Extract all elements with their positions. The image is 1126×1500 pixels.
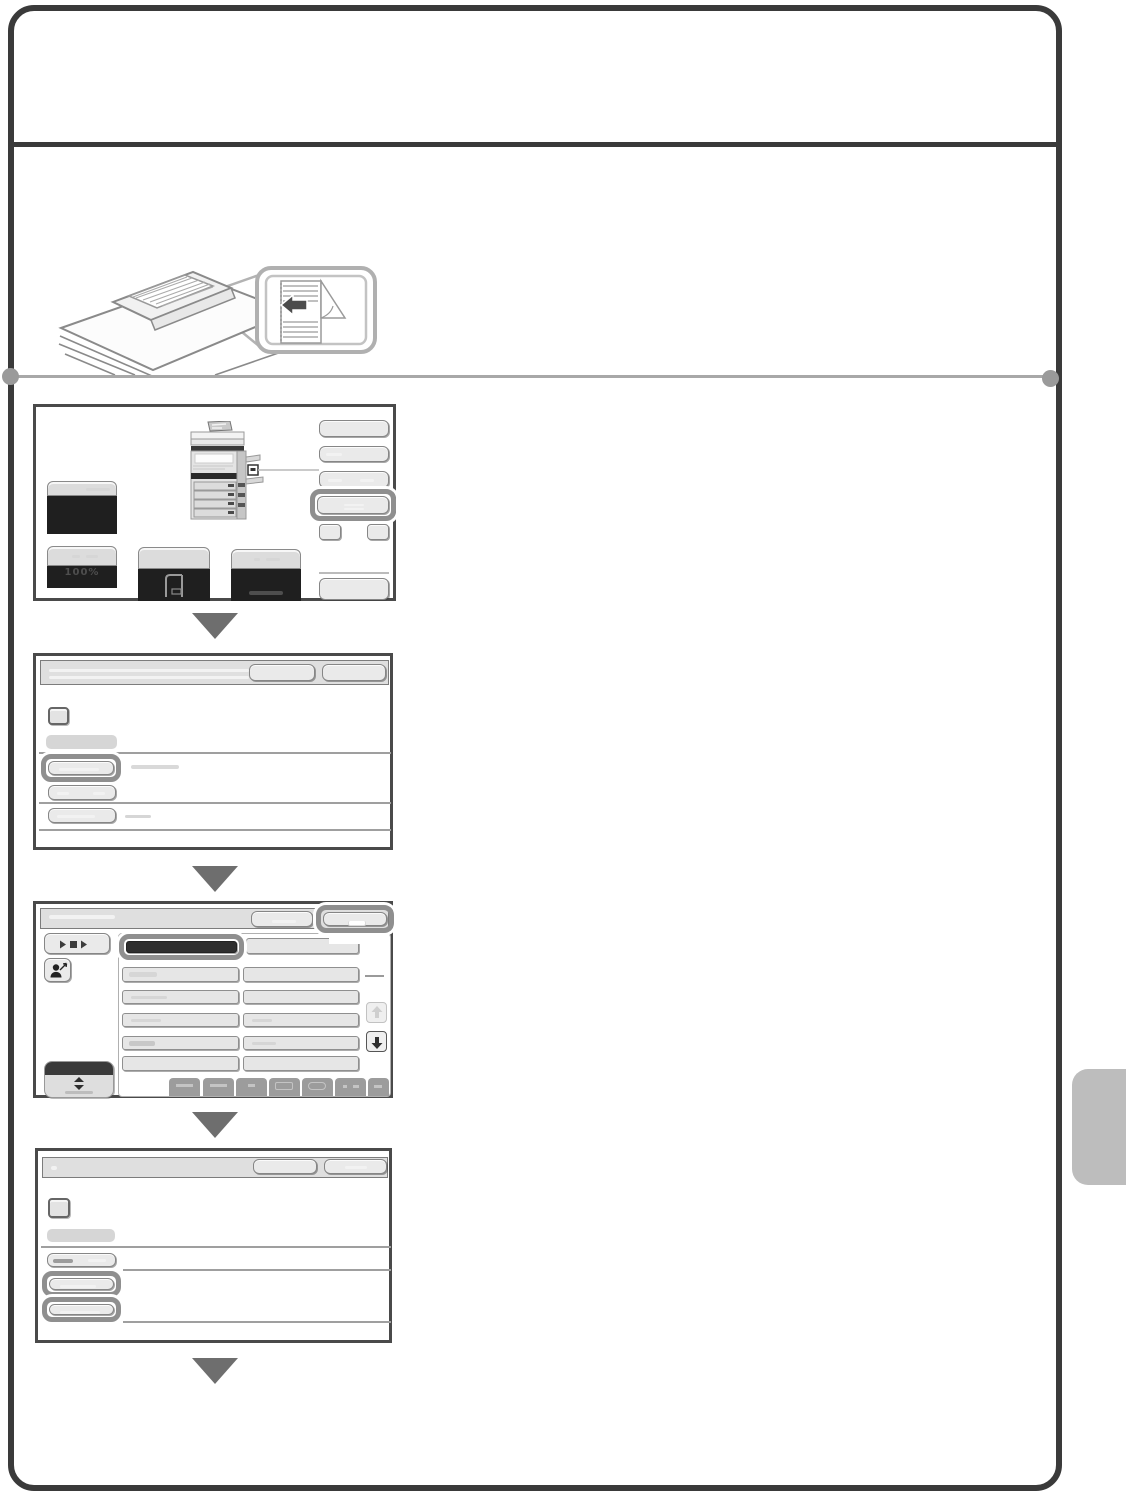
row-divider [123,1269,391,1271]
scroll-up-button[interactable] [366,1002,387,1023]
highlight-ring-one-touch-key [119,934,244,960]
index-tab[interactable] [203,1078,234,1096]
step-arrow-icon [192,613,238,639]
copy-paper-panel [138,569,210,601]
down-arrow-icon [371,1036,383,1049]
one-touch-key[interactable] [122,1036,239,1050]
index-tab[interactable] [368,1078,389,1096]
rule-left-dot [2,368,19,385]
highlight-ring-menu-button [42,1271,121,1297]
step-arrow-icon [192,866,238,892]
person-icon [49,962,68,980]
titlebar-button-right[interactable] [322,664,386,681]
menu-button-highlighted-1[interactable] [49,1278,114,1290]
address-header-button-highlighted[interactable] [323,912,387,926]
adf-illustration [55,250,385,375]
one-touch-key[interactable] [243,990,359,1004]
index-tab[interactable] [169,1078,200,1096]
highlight-ring-special-modes [310,489,396,521]
header-divider-line [10,142,1060,147]
copy-special-modes-button[interactable] [317,496,389,514]
one-touch-key[interactable] [243,1036,359,1050]
copy-right-button-3[interactable] [319,471,389,488]
one-touch-key[interactable] [243,1056,359,1071]
titlebar-button-left[interactable] [249,664,315,681]
sort-address-button[interactable] [44,1061,114,1098]
setting-ghost-label [46,735,117,749]
right-column-divider [319,572,389,574]
step-arrow-icon [192,1358,238,1384]
play-stop-play-icon [59,940,91,949]
one-touch-key[interactable] [122,1013,239,1027]
copy-ratio-value: 100% [47,566,117,580]
page-edge-tab [1072,1069,1126,1185]
highlight-ring-header-button [316,905,394,933]
row-ghost-text [131,765,179,769]
one-touch-key-selected[interactable] [126,941,237,953]
row-divider [123,1321,391,1323]
screenshot-copy-base-screen: 100% [33,404,396,601]
row-divider [39,802,391,804]
copy-left-panel [47,496,117,534]
screenshot-address-book [33,901,393,1098]
copy-right-bottom-button[interactable] [319,578,389,600]
one-touch-key[interactable] [243,967,359,982]
address-header-button[interactable] [251,911,313,927]
highlight-ring-menu-button [42,1297,121,1322]
menu-button-2[interactable] [48,785,116,800]
setting-ghost-label [47,1229,115,1242]
copy-right-button-2[interactable] [319,446,389,462]
index-tab[interactable] [236,1078,267,1096]
titlebar-button-right[interactable] [324,1159,387,1174]
step-separator-rule [12,375,1052,378]
job-status-button[interactable] [44,933,110,954]
menu-button-highlighted-2[interactable] [49,1304,114,1315]
checkbox[interactable] [48,707,69,725]
page-indicator-dash [365,975,384,977]
copy-output-panel-header[interactable] [231,549,301,569]
highlight-ring-menu-button [41,754,121,782]
copy-paper-panel-header[interactable] [138,547,210,569]
copy-ratio-panel-header[interactable] [47,546,117,566]
rule-right-dot [1042,370,1059,387]
address-review-button[interactable] [44,958,71,982]
screenshot-settings-menu [35,1148,392,1343]
menu-button-highlighted[interactable] [48,761,114,775]
copy-small-button-right[interactable] [367,524,389,540]
sort-icon [73,1077,85,1090]
copy-right-button-1[interactable] [319,420,389,437]
copy-left-panel-header[interactable] [47,481,117,496]
paper-size-icon [138,569,210,601]
step-arrow-icon [192,1112,238,1138]
up-arrow-icon [371,1006,383,1019]
one-touch-key[interactable] [122,967,239,982]
index-tab[interactable] [302,1078,333,1096]
paper-trays [194,482,236,517]
index-tab[interactable] [335,1078,366,1096]
copy-output-panel [231,569,301,601]
machine-drawing [186,421,321,531]
callout-box [257,268,375,352]
index-tab[interactable] [269,1078,300,1096]
checkbox[interactable] [48,1198,70,1218]
copy-small-button-left[interactable] [319,524,341,540]
printer-icon [248,465,258,475]
one-touch-key[interactable] [243,1013,359,1027]
one-touch-key[interactable] [122,1056,239,1071]
row-divider [39,829,391,831]
row-divider [41,1246,391,1248]
scroll-down-button[interactable] [366,1031,387,1052]
screenshot-special-modes-menu [33,653,393,850]
menu-button-1[interactable] [47,1253,116,1267]
titlebar-button-left[interactable] [253,1159,317,1174]
menu-button-3[interactable] [48,808,116,823]
copy-ratio-panel: 100% [47,566,117,588]
one-touch-key[interactable] [122,990,239,1004]
row-ghost-text [125,815,151,818]
